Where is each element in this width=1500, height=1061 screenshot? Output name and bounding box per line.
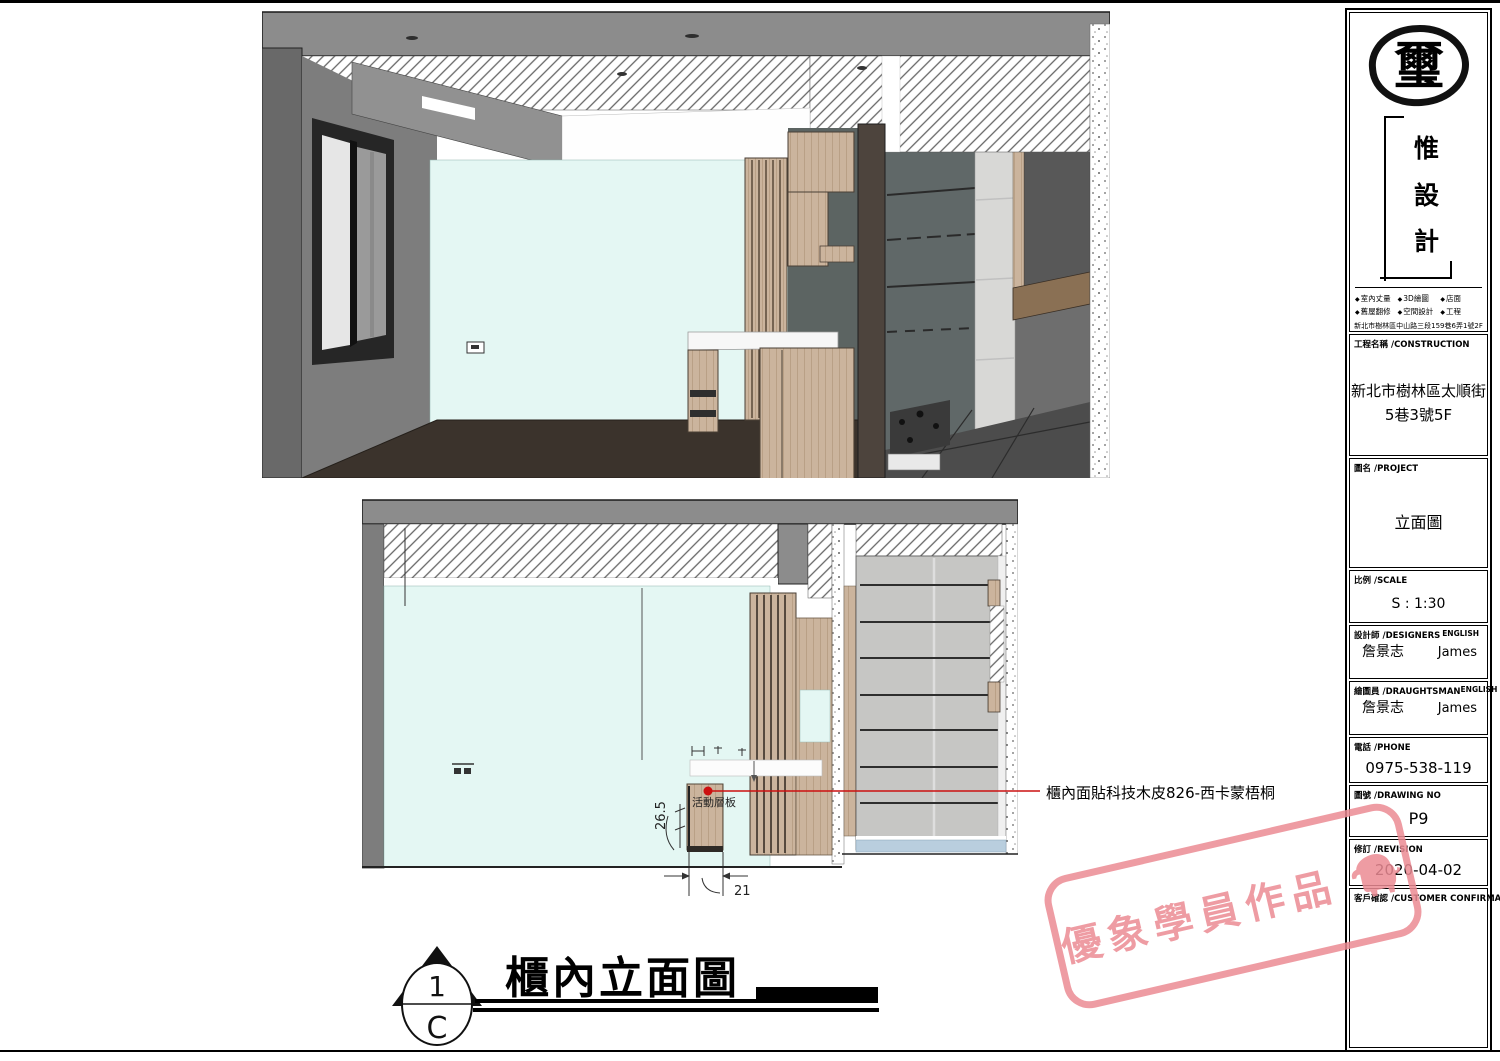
elevation-view: 活動層板 26.5 21 bbox=[362, 498, 1018, 898]
service-item: ◆室內丈量 bbox=[1355, 293, 1397, 304]
elevation-structure bbox=[362, 500, 1018, 868]
stamp-text: 優象學員作品 bbox=[1055, 854, 1343, 974]
brand-section: 璽 惟 設 計 ◆室內丈量 ◆3D繪圖 ◆店面 ◆舊屋翻修 ◆空間設計 ◆工程 … bbox=[1349, 12, 1488, 332]
elephant-icon bbox=[1340, 839, 1411, 907]
divider bbox=[1355, 287, 1482, 288]
project-label: 圖名 /PROJECT bbox=[1350, 459, 1487, 474]
sheet-bottom-border bbox=[0, 1050, 1500, 1052]
title-underline-2 bbox=[473, 1008, 879, 1012]
designers-section: 設計師 /DESIGNERS ENGLISH 詹景志 James bbox=[1349, 625, 1488, 679]
construction-section: 工程名稱 /CONSTRUCTION 新北市樹林區太順街5巷3號5F bbox=[1349, 334, 1488, 456]
diamond-bullet-icon: ◆ bbox=[1440, 309, 1445, 316]
drawing-no-label: 圖號 /DRAWING NO bbox=[1350, 786, 1487, 801]
brand-name: 惟 設 計 bbox=[1384, 116, 1454, 279]
phone-label: 電話 /PHONE bbox=[1350, 738, 1487, 753]
construction-value: 新北市樹林區太順街5巷3號5F bbox=[1350, 350, 1487, 455]
draughtsman-section: 繪圖員 /DRAUGHTSMAN ENGLISH 詹景志 James bbox=[1349, 681, 1488, 735]
detail-symbol: 1 C bbox=[391, 944, 483, 1046]
draughtsman-label: 繪圖員 /DRAUGHTSMAN bbox=[1354, 685, 1461, 697]
title-underline-1 bbox=[475, 999, 878, 1003]
company-seal: 璽 bbox=[1365, 21, 1472, 111]
services-list: ◆室內丈量 ◆3D繪圖 ◆店面 ◆舊屋翻修 ◆空間設計 ◆工程 bbox=[1350, 293, 1487, 317]
scale-value: S : 1:30 bbox=[1350, 586, 1487, 622]
diamond-bullet-icon: ◆ bbox=[1355, 309, 1360, 316]
material-annotation: 櫃內面貼科技木皮826-西卡蒙梧桐 bbox=[1046, 782, 1275, 803]
view-title: 櫃內立面圖 bbox=[505, 942, 740, 1006]
tile-panel bbox=[856, 524, 1018, 854]
brand-char: 設 bbox=[1400, 173, 1454, 219]
left-room bbox=[302, 34, 867, 478]
right-room bbox=[885, 36, 1090, 478]
scale-section: 比例 /SCALE S : 1:30 bbox=[1349, 570, 1488, 623]
designers-label: 設計師 /DESIGNERS bbox=[1354, 629, 1440, 641]
ceiling-structure bbox=[262, 12, 1110, 478]
phone-value: 0975-538-119 bbox=[1350, 753, 1487, 782]
dim-width-label: 21 bbox=[734, 884, 751, 898]
service-item: ◆空間設計 bbox=[1398, 306, 1440, 317]
dimensions bbox=[664, 746, 748, 896]
designer-english-name: James bbox=[1438, 645, 1477, 660]
detail-sheet: C bbox=[427, 1011, 448, 1046]
seal-character: 璽 bbox=[1394, 41, 1444, 91]
brand-char: 計 bbox=[1400, 219, 1454, 265]
perspective-view bbox=[262, 10, 1110, 478]
brand-char: 惟 bbox=[1400, 126, 1454, 172]
phone-section: 電話 /PHONE 0975-538-119 bbox=[1349, 737, 1488, 783]
designer-name: 詹景志 bbox=[1362, 641, 1404, 661]
diamond-bullet-icon: ◆ bbox=[1398, 296, 1403, 303]
designers-english-label: ENGLISH bbox=[1442, 629, 1479, 641]
draughtsman-name: 詹景志 bbox=[1362, 697, 1404, 717]
service-item: ◆工程 bbox=[1440, 306, 1482, 317]
cabinet-desk bbox=[688, 124, 885, 478]
company-address: 新北市樹林區中山路三段159巷6弄1號2F bbox=[1350, 321, 1487, 331]
drawing-sheet: 活動層板 26.5 21 櫃內面貼科技木皮826-西卡蒙梧桐 1 C 櫃內立面圖… bbox=[0, 0, 1500, 1061]
shelf-label: 活動層板 bbox=[692, 795, 736, 809]
service-item: ◆店面 bbox=[1440, 293, 1482, 304]
draughtsman-english-label: ENGLISH bbox=[1461, 685, 1498, 697]
detail-number: 1 bbox=[428, 970, 446, 1003]
cabinet-section bbox=[687, 593, 832, 855]
scale-label: 比例 /SCALE bbox=[1350, 571, 1487, 586]
project-value: 立面圖 bbox=[1350, 474, 1487, 567]
service-item: ◆舊屋翻修 bbox=[1355, 306, 1397, 317]
diamond-bullet-icon: ◆ bbox=[1355, 296, 1360, 303]
service-item: ◆3D繪圖 bbox=[1398, 293, 1440, 304]
title-bar bbox=[756, 987, 878, 999]
diamond-bullet-icon: ◆ bbox=[1398, 309, 1403, 316]
construction-label: 工程名稱 /CONSTRUCTION bbox=[1350, 335, 1487, 350]
draughtsman-english-name: James bbox=[1438, 701, 1477, 716]
ground-lines bbox=[362, 854, 1018, 867]
dim-depth-label: 26.5 bbox=[654, 801, 669, 830]
left-wall-window bbox=[262, 48, 437, 478]
sheet-top-border bbox=[0, 0, 1500, 3]
project-section: 圖名 /PROJECT 立面圖 bbox=[1349, 458, 1488, 568]
diamond-bullet-icon: ◆ bbox=[1440, 296, 1445, 303]
